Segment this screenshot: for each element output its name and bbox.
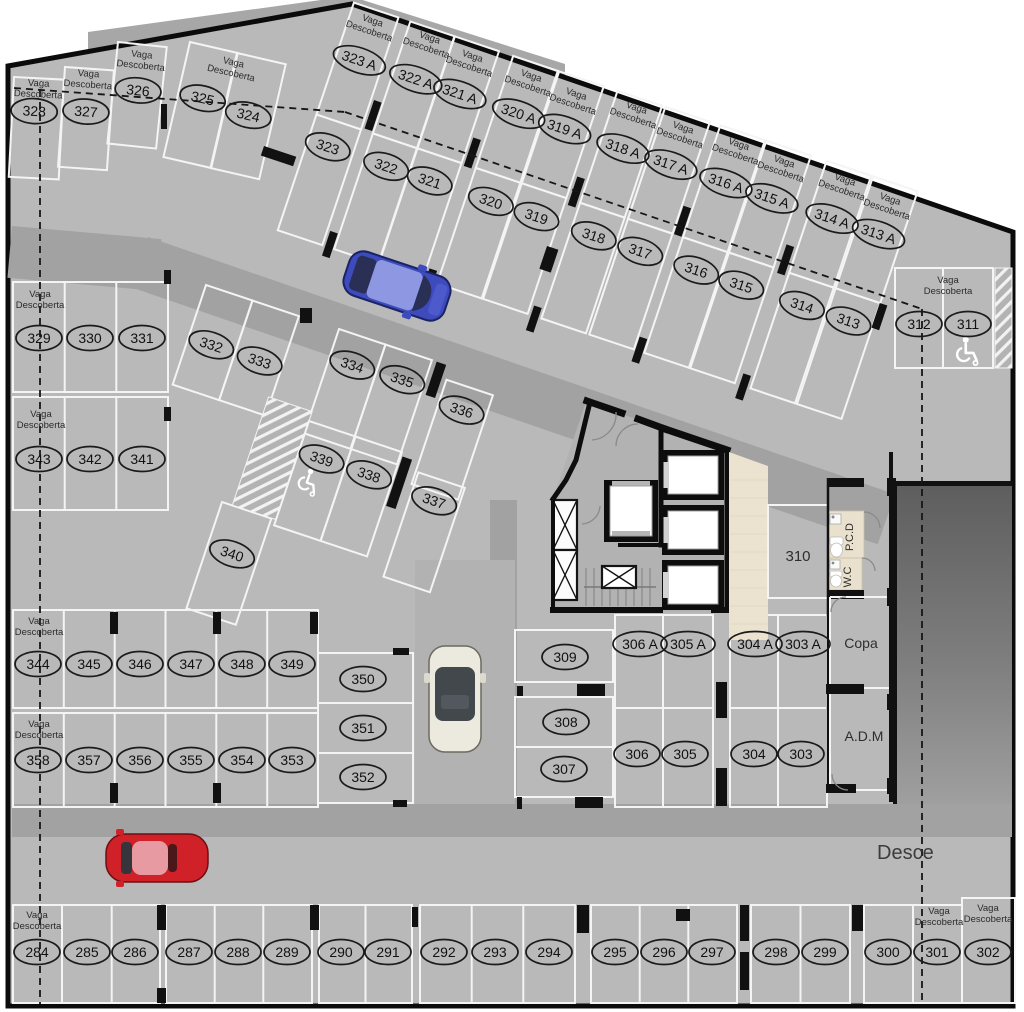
stall-number: 355 — [179, 752, 203, 768]
stall-number: 288 — [226, 944, 250, 960]
stall-number: 294 — [537, 944, 561, 960]
stall-number: 349 — [280, 656, 304, 672]
stall-number: 328 — [22, 102, 46, 119]
stall-number: 293 — [483, 944, 507, 960]
ramp-down — [893, 481, 1013, 804]
stall-number: 296 — [652, 944, 676, 960]
stall-number: 302 — [976, 944, 1000, 960]
duct-shaft — [602, 566, 636, 588]
stall-number: 290 — [329, 944, 353, 960]
stall-number: 350 — [351, 671, 375, 687]
stall-number: 353 — [280, 752, 304, 768]
stall-number: 291 — [376, 944, 400, 960]
stall-number: 289 — [275, 944, 299, 960]
stall-number: 304 — [742, 746, 766, 762]
stall-number: 356 — [128, 752, 152, 768]
stall-number: 284 — [25, 944, 49, 960]
stall-number: 329 — [27, 330, 51, 346]
stair-shaft — [553, 500, 577, 600]
elevator-bank — [662, 450, 724, 610]
hatched-strip-right — [995, 268, 1012, 368]
stall-number: 312 — [907, 316, 931, 332]
stall-number: 303 A — [785, 636, 821, 652]
car-red — [106, 829, 208, 887]
stall-number: 305 A — [670, 636, 706, 652]
stall-number: 341 — [130, 451, 154, 467]
stall-number: 352 — [351, 769, 375, 785]
stall-number: 307 — [552, 761, 576, 777]
stall-number: 299 — [813, 944, 837, 960]
stall-number: 344 — [26, 656, 50, 672]
ramp-direction-label: Desce — [877, 842, 934, 864]
floor-plan-svg: VagaDescobertaVagaDescobertaVagaDescober… — [0, 0, 1024, 1012]
stall-number: 292 — [432, 944, 456, 960]
wc-label: W.C — [842, 567, 854, 588]
admin-label: A.D.M — [845, 728, 884, 744]
stall-number: 286 — [123, 944, 147, 960]
stall-number: 287 — [177, 944, 201, 960]
stall-number: 297 — [700, 944, 724, 960]
stall-number: 327 — [74, 103, 99, 121]
stall-number: 354 — [230, 752, 254, 768]
stall-number: 347 — [179, 656, 203, 672]
stall-number: 331 — [130, 330, 154, 346]
stall-number: 308 — [554, 714, 578, 730]
stall-number: 298 — [764, 944, 788, 960]
stall-number: 300 — [876, 944, 900, 960]
stall-number: 285 — [75, 944, 99, 960]
stall-number: 311 — [957, 316, 980, 332]
stall-number: 295 — [603, 944, 627, 960]
stall-number: 326 — [126, 81, 151, 99]
stall-number: 357 — [77, 752, 101, 768]
stall-number: 358 — [26, 752, 50, 768]
room-310-label: 310 — [785, 548, 810, 565]
stall-number: 301 — [925, 944, 949, 960]
stall-number: 306 A — [622, 636, 658, 652]
stall-number: 309 — [553, 649, 577, 665]
stall-number: 342 — [78, 451, 102, 467]
stall-number: 306 — [625, 746, 649, 762]
stall-number: 348 — [230, 656, 254, 672]
stall-number: 303 — [789, 746, 813, 762]
pantry-label: Copa — [844, 635, 878, 651]
lobby-corridor — [729, 452, 768, 640]
stall-number: 330 — [78, 330, 102, 346]
stall-number: 346 — [128, 656, 152, 672]
stall-number: 345 — [77, 656, 101, 672]
stall-number: 304 A — [737, 636, 773, 652]
elevator-left — [604, 480, 658, 542]
stall-number: 343 — [27, 451, 51, 467]
stall-number: 351 — [351, 720, 375, 736]
car-silver — [424, 646, 486, 752]
parking-floor-plan: VagaDescobertaVagaDescobertaVagaDescober… — [0, 0, 1024, 1012]
stall-number: 305 — [673, 746, 697, 762]
pcd-label: P.C.D — [844, 523, 856, 551]
